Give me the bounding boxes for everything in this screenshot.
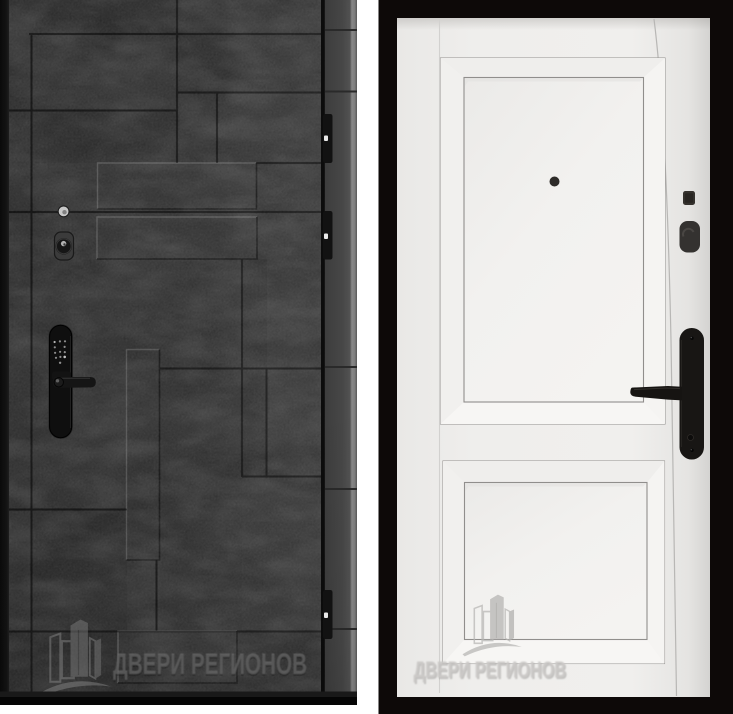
svg-text:ДВЕРИ РЕГИОНОВ: ДВЕРИ РЕГИОНОВ [414,657,567,683]
svg-text:ДВЕРИ РЕГИОНОВ: ДВЕРИ РЕГИОНОВ [113,648,307,681]
